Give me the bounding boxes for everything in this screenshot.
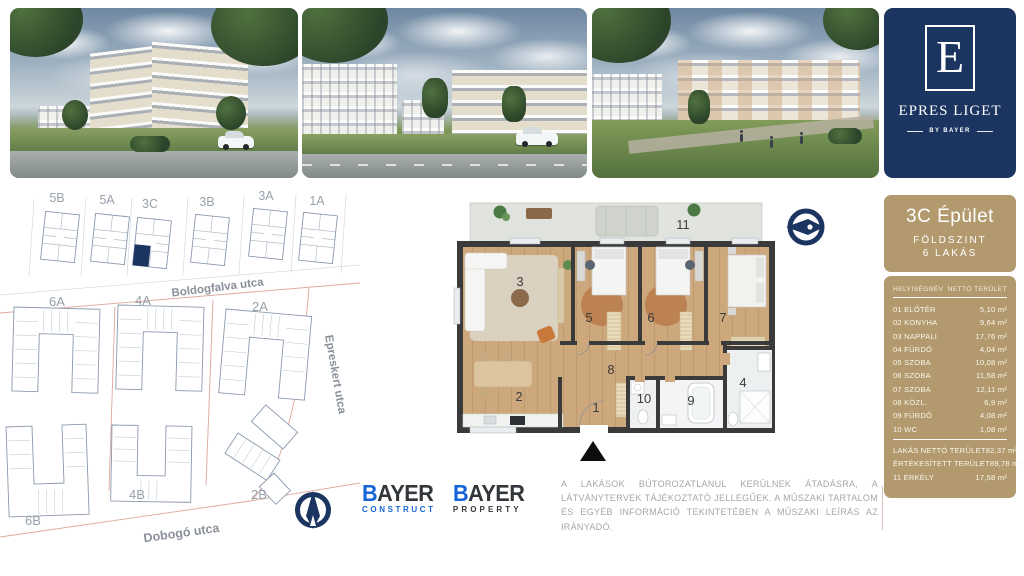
lane-markings	[302, 164, 587, 166]
label-3C: 3C	[142, 197, 158, 211]
floor-plan-compass-icon	[786, 211, 824, 243]
room-row: ÉRTÉKESÍTETT TERÜLET89,78 m²	[893, 457, 1007, 470]
building-name: 3C Épület	[884, 206, 1016, 228]
label-5B: 5B	[49, 191, 64, 205]
footprint-5A	[91, 213, 130, 264]
label-2A: 2A	[252, 299, 268, 314]
brochure-page: E EPRES LIGET BY BAYER 3C Épület FÖLDSZI…	[0, 0, 1024, 576]
car	[218, 136, 254, 148]
plant	[502, 213, 510, 221]
room-4-label: 4	[739, 375, 746, 390]
room-table-rows: 01 ELŐTÉR5,10 m²02 KONYHA9,64 m²03 NAPPA…	[893, 303, 1007, 436]
room-row: 01 ELŐTÉR5,10 m²	[893, 303, 1007, 316]
footprint-6B	[6, 424, 89, 517]
balcony-bench	[526, 208, 552, 219]
photo-courtyard-render	[592, 8, 879, 178]
room-row: 06 SZOBA11,58 m²	[893, 369, 1007, 382]
room-row: 08 KÖZL.6,9 m²	[893, 396, 1007, 409]
building-left	[302, 64, 397, 142]
hall-closet	[616, 383, 627, 417]
room-row: 07 SZOBA12,11 m²	[893, 383, 1007, 396]
road	[10, 151, 298, 178]
summary-rows: LAKÁS NETTÓ TERÜLET82,37 m²ÉRTÉKESÍTETT …	[893, 444, 1007, 484]
room-row: 03 NAPPALI17,76 m²	[893, 330, 1007, 343]
label-4A: 4A	[135, 293, 151, 308]
building-footprints-middle-row	[12, 305, 312, 450]
unit-count: 6 LAKÁS	[884, 248, 1016, 259]
label-3A: 3A	[258, 189, 274, 203]
label-2B: 2B	[251, 487, 267, 502]
building-footprints-bottom-row	[6, 424, 301, 517]
building-title-panel: 3C Épület FÖLDSZINT 6 LAKÁS	[884, 195, 1016, 272]
room-row: 04 FÜRDŐ4,04 m²	[893, 343, 1007, 356]
room-row: 05 SZOBA10,08 m²	[893, 356, 1007, 369]
label-5A: 5A	[99, 193, 115, 207]
person	[740, 134, 743, 142]
room-row: 02 KONYHA9,64 m²	[893, 316, 1007, 329]
label-1A: 1A	[309, 194, 325, 208]
site-plan-compass-icon	[298, 491, 329, 529]
table-header: HELYISÉGNÉV NETTÓ TERÜLET	[893, 286, 1007, 298]
bayer-construct-logo: BAYER CONSTRUCT	[362, 482, 438, 514]
footprint-4B	[111, 425, 192, 502]
tree	[422, 78, 448, 118]
epres-liget-logo-card: E EPRES LIGET BY BAYER	[884, 8, 1016, 178]
tree	[688, 90, 710, 124]
photo-building-render-2	[302, 8, 587, 178]
developer-logos: BAYER CONSTRUCT BAYER PROPERTY	[362, 482, 529, 514]
label-4B: 4B	[129, 487, 145, 502]
tagline-line-left	[907, 131, 923, 132]
tree	[502, 86, 526, 122]
street-dobogo: Dobogó utca	[143, 521, 222, 546]
tree	[62, 100, 88, 130]
footprint-5B	[41, 211, 80, 262]
room-area-table: HELYISÉGNÉV NETTÓ TERÜLET 01 ELŐTÉR5,10 …	[884, 276, 1016, 498]
person	[770, 140, 773, 148]
room-10-label: 10	[637, 391, 651, 406]
living-room-furniture	[465, 253, 573, 344]
room-11-label: 11	[676, 217, 690, 232]
room-3-label: 3	[516, 274, 523, 289]
monogram-box: E	[925, 25, 975, 91]
room-7-label: 7	[719, 310, 726, 325]
photo-building-render-1	[10, 8, 298, 178]
footprint-2A	[214, 309, 311, 450]
floor-name: FÖLDSZINT	[884, 235, 1016, 246]
room-8-label: 8	[607, 362, 614, 377]
floor-plan: 1 2 3 4 5 6 7 8 9 10 11	[440, 193, 836, 471]
room-row: LAKÁS NETTÓ TERÜLET82,37 m²	[893, 444, 1007, 457]
room-row: 11 ERKÉLY17,58 m²	[893, 471, 1007, 484]
highlighted-unit-3c	[133, 244, 151, 267]
footprint-4A	[116, 305, 204, 391]
disclaimer-text: A LAKÁSOK BÚTOROZATLANUL KERÜLNEK ÁTADÁS…	[561, 477, 878, 534]
street-epreskert: Epreskert utca	[322, 334, 348, 415]
bush	[828, 128, 862, 144]
label-3B: 3B	[199, 195, 214, 209]
road	[302, 154, 587, 178]
room-9-label: 9	[687, 393, 694, 408]
monogram-letter: E	[936, 34, 964, 80]
header-room-name: HELYISÉGNÉV	[893, 286, 943, 293]
footprint-3C	[133, 217, 172, 268]
section-divider	[882, 486, 883, 530]
room-6-label: 6	[647, 310, 654, 325]
bayer-property-logo: BAYER PROPERTY	[453, 482, 529, 514]
entrance-arrow-icon	[580, 441, 606, 461]
footprint-3A	[249, 208, 288, 259]
tree	[216, 96, 246, 130]
balcony-sofa	[596, 206, 658, 236]
tagline-line-right	[977, 131, 993, 132]
bayer-construct-wordmark: BAYER	[362, 482, 433, 504]
person	[800, 136, 803, 144]
car	[516, 132, 558, 145]
brand-title: EPRES LIGET	[898, 103, 1001, 120]
header-area: NETTÓ TERÜLET	[948, 286, 1007, 293]
room-1-label: 1	[592, 400, 599, 415]
bayer-property-wordmark: BAYER	[453, 482, 524, 504]
footprint-6A	[12, 307, 100, 393]
brand-tagline: BY BAYER	[907, 128, 993, 134]
bush	[130, 136, 170, 152]
label-6B: 6B	[25, 513, 41, 528]
footprint-3B	[191, 214, 230, 265]
bayer-construct-sub: CONSTRUCT	[362, 505, 436, 514]
table-divider	[893, 439, 1007, 440]
room-row: 10 WC1,08 m²	[893, 423, 1007, 436]
room-2-label: 2	[515, 389, 522, 404]
room-row: 09 FÜRDŐ4,08 m²	[893, 409, 1007, 422]
building-left	[592, 74, 662, 126]
room-5-label: 5	[585, 310, 592, 325]
footprint-1A	[299, 212, 338, 263]
label-6A: 6A	[49, 294, 65, 309]
bayer-property-sub: PROPERTY	[453, 505, 522, 514]
site-plan: 5B 5A 3C 3B 3A 1A 6A 4A 2A 6B 4B 2B Bold…	[0, 185, 360, 576]
plant	[688, 204, 701, 217]
